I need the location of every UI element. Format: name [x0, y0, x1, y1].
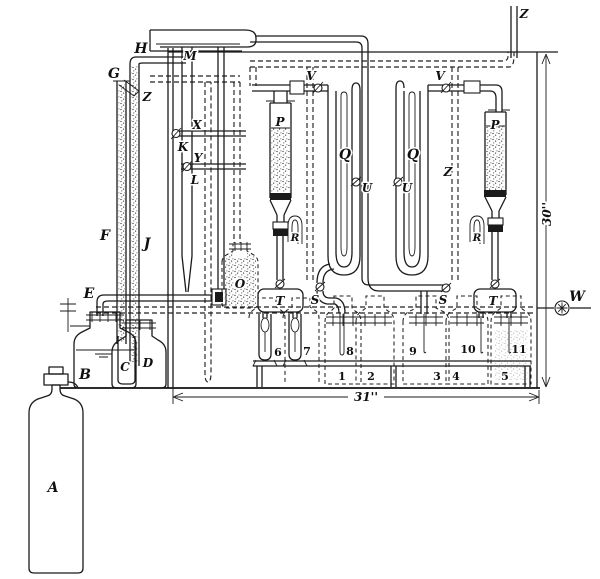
label-inner-vessel: C: [120, 360, 130, 374]
label-trap-right: R: [472, 232, 482, 244]
dimension-height: 30'': [540, 202, 554, 226]
label-gauge-tube-left: F: [99, 228, 111, 244]
label-stopcock-u-right: U: [402, 181, 414, 195]
label-inlet-bend: E: [83, 286, 95, 302]
label-manifold: M: [182, 49, 197, 63]
label-flask-4: 4: [452, 370, 460, 383]
label-leveling-bottle: D: [142, 356, 154, 370]
label-tube-8: 8: [346, 345, 354, 358]
label-branch-upper: X: [191, 118, 202, 132]
label-utube-right: Q: [407, 147, 419, 163]
label-trap-left: R: [290, 232, 300, 244]
apparatus-diagram: A B C D E F G H J K L M O P P Q Q R R S …: [0, 0, 600, 579]
label-tube-9: 9: [409, 345, 417, 358]
label-stopcock-s-left: S: [311, 293, 320, 307]
label-tube-10: 10: [460, 343, 476, 356]
label-reagent-bottle: O: [235, 277, 246, 291]
label-flask-5: 5: [501, 370, 509, 383]
label-vent-jet: Z: [142, 90, 153, 104]
apparatus-figure: A B C D E F G H J K L M O P P Q Q R R S …: [0, 0, 600, 579]
label-stopcock-u-left: U: [362, 181, 374, 195]
label-delivery-head-left: T: [276, 294, 286, 308]
label-tube-11: 11: [511, 343, 526, 356]
label-vent-opening: G: [108, 66, 120, 82]
dimension-width: 31'': [354, 390, 378, 404]
label-flask-2: 2: [367, 370, 375, 383]
label-vent-line: Z: [443, 165, 454, 179]
label-tower-right: P: [489, 118, 500, 132]
label-utube-left: Q: [339, 147, 351, 163]
label-stopcock-s-right: S: [439, 293, 448, 307]
label-stopcock-k: K: [177, 140, 189, 154]
label-tube-6: 6: [274, 346, 282, 359]
label-delivery-head-right: T: [489, 294, 499, 308]
label-tube-7: 7: [303, 345, 311, 358]
label-outlet-valve: W: [569, 289, 586, 305]
label-flask-1: 1: [338, 370, 346, 383]
label-stopcock-l: L: [190, 173, 199, 187]
label-branch-lower: Y: [194, 151, 204, 165]
label-tower-left: P: [274, 115, 285, 129]
label-header-tube: H: [133, 41, 148, 57]
label-wash-bottle: B: [78, 367, 91, 383]
label-flask-3: 3: [433, 370, 441, 383]
label-gas-cylinder: A: [46, 480, 59, 496]
label-exhaust-tube: Z: [519, 7, 530, 21]
